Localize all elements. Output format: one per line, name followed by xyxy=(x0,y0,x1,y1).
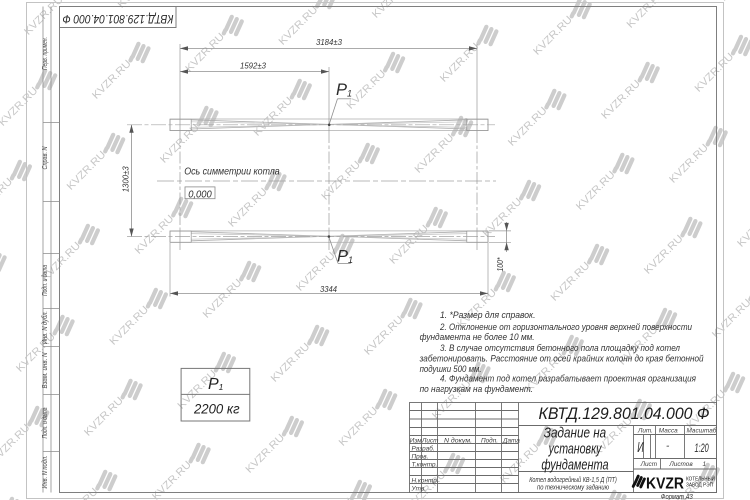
svg-text:2200 кг: 2200 кг xyxy=(193,402,240,417)
svg-text:P1: P1 xyxy=(337,248,353,266)
svg-text:Инв. N дубл.: Инв. N дубл. xyxy=(41,311,49,344)
svg-text:P1: P1 xyxy=(336,81,352,99)
svg-text:фундамента: фундамента xyxy=(541,458,608,474)
svg-text:3. В случае отсутствия бетонно: 3. В случае отсутствия бетонного пола пл… xyxy=(440,343,681,353)
svg-text:Подп. и дата: Подп. и дата xyxy=(41,265,49,296)
svg-text:0,000: 0,000 xyxy=(188,188,212,200)
svg-text:Пров.: Пров. xyxy=(412,454,429,461)
svg-text:Справ. N: Справ. N xyxy=(42,146,49,170)
svg-text:1: 1 xyxy=(703,461,707,468)
svg-text:Масса: Масса xyxy=(659,428,678,435)
svg-text:КОТЕЛЬНЫЙ: КОТЕЛЬНЫЙ xyxy=(686,475,715,483)
svg-text:Т.контр.: Т.контр. xyxy=(412,462,438,469)
svg-text:Изм: Изм xyxy=(410,438,422,445)
svg-text:Ось симметрии котла: Ось симметрии котла xyxy=(184,165,280,177)
svg-text:по техническому заданию: по техническому заданию xyxy=(537,482,609,491)
svg-text:Подп.: Подп. xyxy=(481,437,498,445)
svg-text:1. *Размер для справок.: 1. *Размер для справок. xyxy=(440,310,536,320)
svg-text:Лист: Лист xyxy=(421,438,439,445)
svg-text:N докум.: N докум. xyxy=(444,437,472,445)
svg-text:Задание на: Задание на xyxy=(544,426,606,442)
svg-text:1300±3: 1300±3 xyxy=(120,166,130,192)
svg-text:Утв.: Утв. xyxy=(411,486,427,493)
svg-text:Формат А3: Формат А3 xyxy=(661,492,694,500)
svg-text:по нагрузкам на фундамент.: по нагрузкам на фундамент. xyxy=(420,384,533,394)
svg-text:Взам. инв. N: Взам. инв. N xyxy=(42,352,49,389)
svg-text:Масштаб: Масштаб xyxy=(687,427,717,435)
svg-text:Подп. и дата: Подп. и дата xyxy=(41,407,49,438)
svg-text:забетонировать. Расстояние от: забетонировать. Расстояние от осей крайн… xyxy=(419,353,704,363)
svg-text:установку: установку xyxy=(548,442,602,458)
svg-text:4. Фундамент под котел разраба: 4. Фундамент под котел разрабатывает про… xyxy=(440,374,696,384)
svg-text:P1: P1 xyxy=(208,376,224,393)
svg-text:1:20: 1:20 xyxy=(695,441,709,455)
svg-text:1592±3: 1592±3 xyxy=(240,60,266,70)
svg-text:KVZR: KVZR xyxy=(646,476,684,493)
svg-text:3184±3: 3184±3 xyxy=(316,37,342,47)
svg-text:подушки 500 мм.: подушки 500 мм. xyxy=(420,364,482,374)
svg-text:Инв. N подл.: Инв. N подл. xyxy=(41,455,49,488)
svg-text:2. Отклонение от горизонтально: 2. Отклонение от горизонтального уровня … xyxy=(439,322,692,332)
svg-text:Н.контр.: Н.контр. xyxy=(412,478,439,485)
svg-text:Листов: Листов xyxy=(668,461,693,468)
svg-text:КВТД.129.801.04.000 Ф: КВТД.129.801.04.000 Ф xyxy=(539,404,710,423)
svg-text:Дата: Дата xyxy=(502,438,520,445)
svg-text:100*: 100* xyxy=(495,257,505,272)
svg-text:-: - xyxy=(666,441,670,452)
svg-text:ЗАВОД РЭП: ЗАВОД РЭП xyxy=(686,482,713,488)
svg-text:3344: 3344 xyxy=(320,284,337,294)
svg-text:фундамента не более 10 мм.: фундамента не более 10 мм. xyxy=(420,332,535,342)
svg-text:Лит.: Лит. xyxy=(637,428,653,435)
svg-text:Перв. примен.: Перв. примен. xyxy=(42,37,49,70)
svg-text:И: И xyxy=(637,439,644,456)
svg-text:КВТД.129.801.04.000 Ф: КВТД.129.801.04.000 Ф xyxy=(63,12,174,24)
svg-text:Разраб.: Разраб. xyxy=(412,445,435,453)
svg-text:Лист: Лист xyxy=(640,461,658,468)
